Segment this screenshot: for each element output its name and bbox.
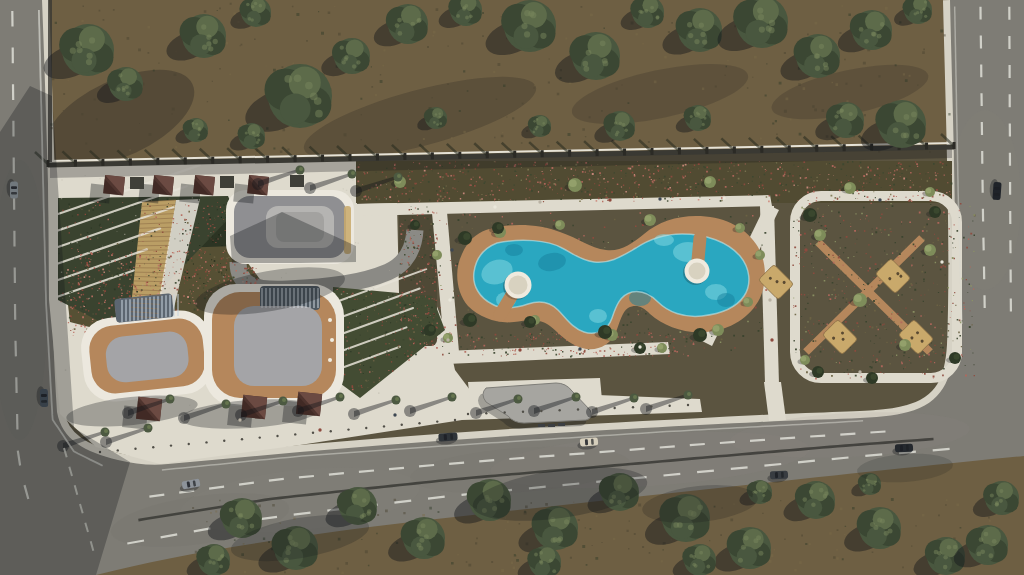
- bollard: [170, 444, 172, 446]
- person-dot: [858, 370, 861, 373]
- bollard: [259, 436, 261, 438]
- person-dot: [238, 418, 241, 421]
- person-dot: [450, 248, 453, 251]
- wall-post: [266, 156, 269, 163]
- wall-post: [953, 142, 956, 149]
- wall-post: [788, 145, 791, 152]
- pool-shallow: [589, 309, 607, 323]
- aerial-site-render: [0, 0, 1024, 575]
- bollard: [436, 420, 438, 422]
- bollard: [312, 432, 314, 434]
- wall-post: [760, 146, 763, 153]
- wall-post: [458, 152, 461, 159]
- bollard: [467, 413, 469, 415]
- wall-post: [678, 147, 681, 154]
- person-dot: [578, 347, 581, 350]
- pool-island-center: [509, 276, 528, 295]
- wall-post: [568, 150, 571, 157]
- deck-furniture: [328, 318, 332, 322]
- person-dot: [318, 428, 321, 431]
- person-dot: [722, 196, 725, 199]
- wall-post: [623, 149, 626, 156]
- bus-stop-seat: [548, 424, 555, 427]
- pool-island-center: [689, 263, 706, 280]
- person-dot: [446, 338, 449, 341]
- bollard: [503, 411, 505, 413]
- wall-post: [486, 151, 489, 158]
- wall-post: [925, 143, 928, 150]
- bollard: [632, 406, 634, 408]
- wall-post: [843, 144, 846, 151]
- wall-post: [294, 155, 297, 162]
- bollard: [613, 407, 615, 409]
- render-canvas: [0, 0, 1024, 575]
- bollard: [577, 408, 579, 410]
- planter-box: [220, 176, 234, 188]
- deck-furniture: [328, 358, 332, 362]
- bollard: [687, 404, 689, 406]
- bus-stop-seat: [558, 423, 565, 426]
- bollard: [650, 405, 652, 407]
- planter-box: [290, 175, 304, 187]
- bollard: [365, 427, 367, 429]
- bollard: [485, 412, 487, 414]
- wall-post: [376, 153, 379, 160]
- wall-post: [211, 157, 214, 164]
- bollard: [134, 448, 136, 450]
- bollard: [668, 405, 670, 407]
- pool-deep: [717, 293, 735, 307]
- person-dot: [538, 200, 541, 203]
- bollard: [205, 441, 207, 443]
- person-dot: [658, 197, 661, 200]
- bollard: [401, 424, 403, 426]
- bollard: [276, 435, 278, 437]
- bollard: [383, 425, 385, 427]
- person-dot: [393, 413, 396, 416]
- bollard: [558, 409, 560, 411]
- wall-post: [541, 150, 544, 157]
- bollard: [152, 446, 154, 448]
- person-dot: [770, 338, 773, 341]
- wall-post: [239, 156, 242, 163]
- bollard: [117, 449, 119, 451]
- person-dot: [518, 348, 521, 351]
- person-dot: [448, 298, 451, 301]
- person-dot: [804, 248, 807, 251]
- building-sw-roof: [104, 330, 190, 384]
- person-dot: [940, 260, 943, 263]
- wall-post: [651, 148, 654, 155]
- wall-post: [129, 158, 132, 165]
- planter-box: [130, 177, 144, 189]
- wall-post: [101, 159, 104, 166]
- wall-post: [156, 158, 159, 165]
- wall-post: [733, 146, 736, 153]
- slat-line: [134, 277, 164, 278]
- wall-post: [184, 157, 187, 164]
- pool-deep: [505, 244, 523, 256]
- bollard: [294, 433, 296, 435]
- building-sc-roof: [234, 306, 322, 386]
- bollard: [418, 422, 420, 424]
- person-dot: [608, 198, 611, 201]
- wall-post: [513, 151, 516, 158]
- wall-post: [815, 145, 818, 152]
- person-dot: [768, 298, 771, 301]
- wall-post: [596, 149, 599, 156]
- slat-line: [138, 241, 170, 242]
- bollard: [347, 428, 349, 430]
- person-dot: [878, 198, 881, 201]
- bollard: [595, 408, 597, 410]
- wall-post: [403, 153, 406, 160]
- deck-furniture: [330, 338, 334, 342]
- bollard: [188, 443, 190, 445]
- person-dot: [638, 345, 641, 348]
- bollard: [241, 438, 243, 440]
- wall-post: [705, 147, 708, 154]
- wall-post: [349, 154, 352, 161]
- bollard: [330, 430, 332, 432]
- wall-post: [431, 152, 434, 159]
- bollard: [223, 440, 225, 442]
- wall-post: [321, 155, 324, 162]
- bollard: [522, 411, 524, 413]
- wall-post: [74, 159, 77, 166]
- person-dot: [493, 205, 496, 208]
- bollard: [454, 419, 456, 421]
- bus-stop-seat: [538, 424, 545, 427]
- bollard: [540, 410, 542, 412]
